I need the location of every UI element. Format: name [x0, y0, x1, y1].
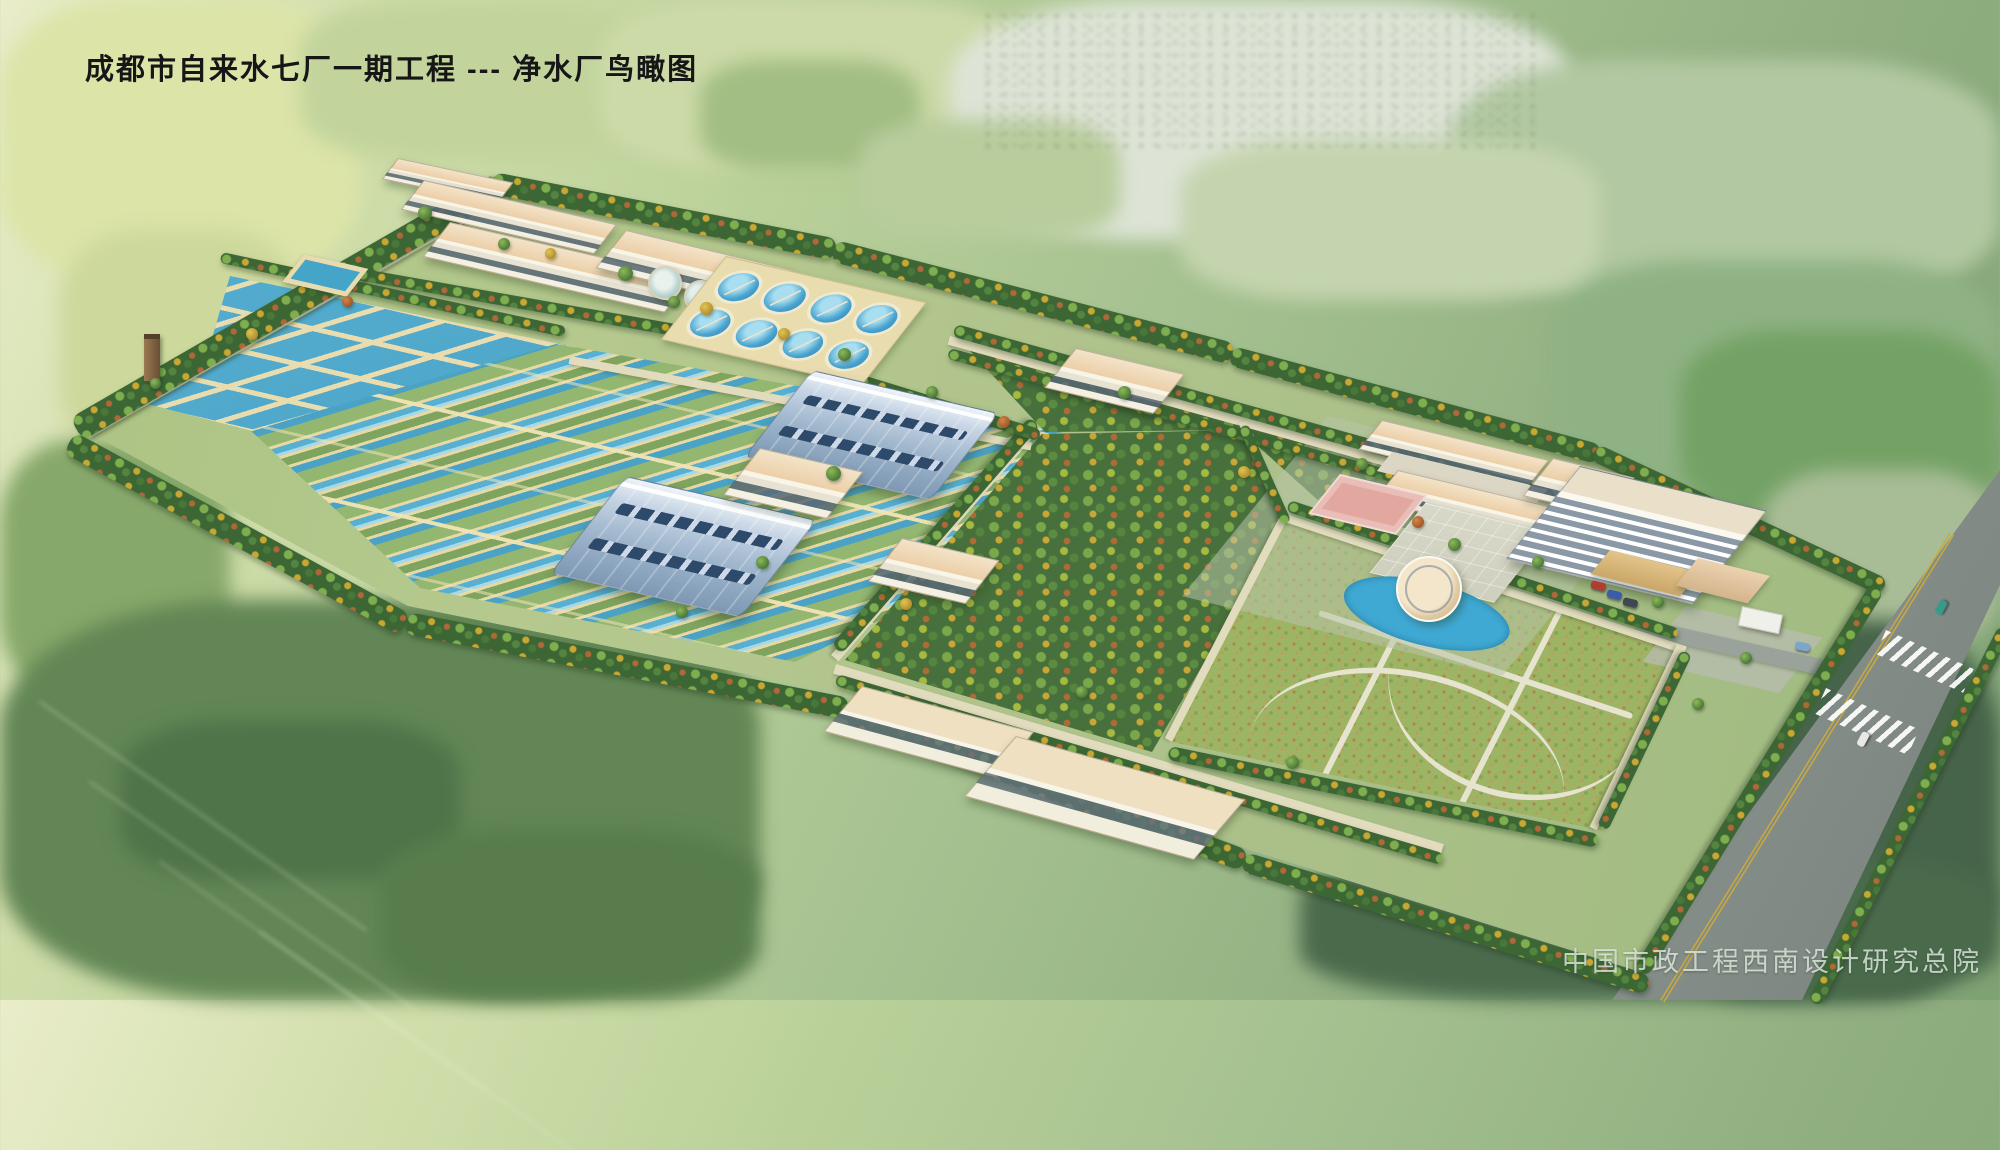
tree [926, 386, 938, 398]
tree-yellow [545, 248, 556, 259]
tree-orange [1412, 516, 1424, 528]
tree [1532, 556, 1544, 568]
round-pavilion [1396, 556, 1462, 622]
tree-orange [998, 416, 1010, 428]
tree [1356, 458, 1368, 470]
drawing-title: 成都市自来水七厂一期工程 --- 净水厂鸟瞰图 [85, 46, 698, 88]
tree [418, 206, 432, 220]
village-speckle [980, 10, 1540, 150]
tree-orange [342, 296, 353, 307]
tree-yellow [1238, 466, 1250, 478]
tree [1076, 686, 1088, 698]
tree-yellow [900, 598, 912, 610]
tree [1448, 538, 1461, 551]
tree-yellow [778, 328, 790, 340]
tree [668, 296, 680, 308]
design-institute-credit: 中国市政工程西南设计研究总院 [1562, 940, 1982, 979]
tree [498, 238, 510, 250]
background-field-patch [380, 830, 760, 1000]
tree [150, 378, 161, 389]
tree [676, 606, 688, 618]
tree [1118, 386, 1131, 399]
tree [1652, 596, 1664, 608]
tree [1692, 698, 1704, 710]
aerial-rendering-canvas: { "meta": { "title": "成都市自来水七厂一期工程 --- 净… [0, 0, 2000, 1000]
tree [756, 556, 769, 569]
tree [1740, 652, 1752, 664]
tree [1286, 756, 1299, 769]
tree [826, 466, 841, 481]
tree-yellow [246, 328, 258, 340]
chimney-tower [144, 334, 160, 381]
tree [838, 348, 851, 361]
tree [618, 266, 633, 281]
tree-yellow [700, 302, 713, 315]
background-field-patch [1180, 140, 1600, 300]
round-storage-tank [648, 266, 682, 300]
